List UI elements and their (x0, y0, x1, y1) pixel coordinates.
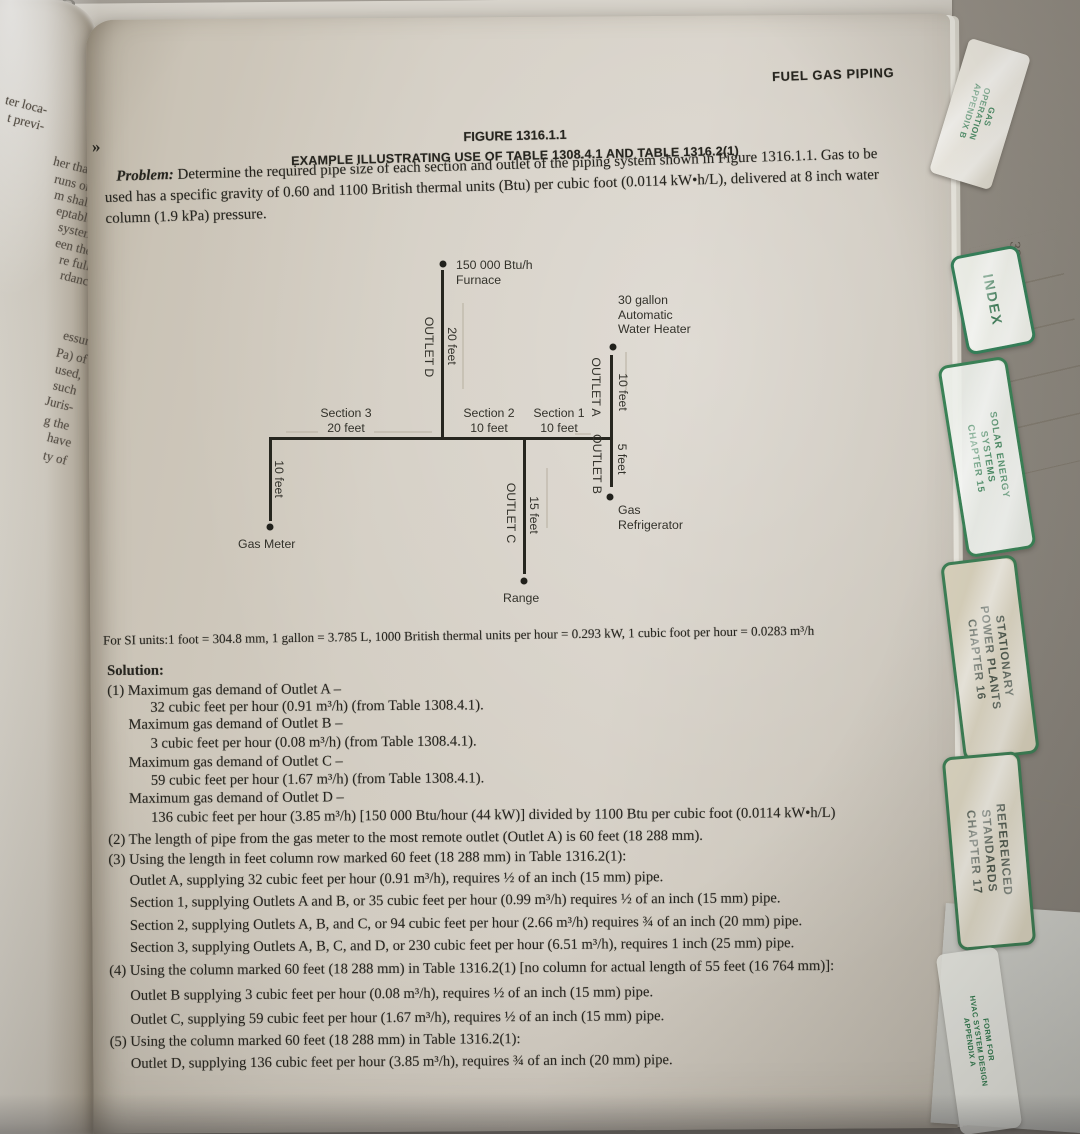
solution-line: 3 cubic feet per hour (0.08 m³/h) (from … (151, 733, 477, 752)
solution-line: Section 2, supplying Outlets A, B, and C… (130, 913, 802, 935)
solution-line: Outlet B supplying 3 cubic feet per hour… (130, 984, 653, 1005)
page-content: FUEL GAS PIPING » FIGURE 1316.1.1 EXAMPL… (0, 0, 1080, 1134)
solution-line: 136 cubic feet per hour (3.85 m³/h) [150… (151, 805, 836, 827)
solution-line: 32 cubic feet per hour (0.91 m³/h) (from… (150, 697, 484, 716)
bottom-shadow (0, 1094, 1080, 1134)
solution-line: (2) The length of pipe from the gas mete… (108, 828, 703, 849)
tab-glare (953, 248, 1034, 352)
solution-line: (3) Using the length in feet column row … (108, 848, 626, 869)
solution-heading: Solution: (107, 663, 164, 680)
solution-line: Outlet A, supplying 32 cubic feet per ho… (129, 869, 663, 890)
solution-line: (5) Using the column marked 60 feet (18 … (110, 1031, 521, 1051)
tab-glare (945, 754, 1033, 948)
solution-line: 59 cubic feet per hour (1.67 m³/h) (from… (151, 770, 485, 789)
chapter-17-tab: REFERENCED STANDARDS CHAPTER 17 (942, 751, 1037, 951)
solution-line: Outlet C, supplying 59 cubic feet per ho… (130, 1008, 664, 1029)
solution-section: Solution: (1) Maximum gas demand of Outl… (0, 0, 1080, 1134)
solution-line: Outlet D, supplying 136 cubic feet per h… (131, 1052, 673, 1073)
solution-line: Maximum gas demand of Outlet B – (128, 715, 342, 733)
solution-line: (4) Using the column marked 60 feet (18 … (109, 958, 834, 980)
solution-line: Maximum gas demand of Outlet C – (129, 753, 343, 771)
solution-line: (1) Maximum gas demand of Outlet A – (107, 681, 341, 700)
solution-line: Section 3, supplying Outlets A, B, C, an… (130, 935, 794, 957)
solution-line: Section 1, supplying Outlets A and B, or… (130, 890, 781, 912)
solution-line: Maximum gas demand of Outlet D – (129, 789, 344, 807)
book-page-photo: 3 ter loca- t previ- her than runs or m … (0, 0, 1080, 1134)
